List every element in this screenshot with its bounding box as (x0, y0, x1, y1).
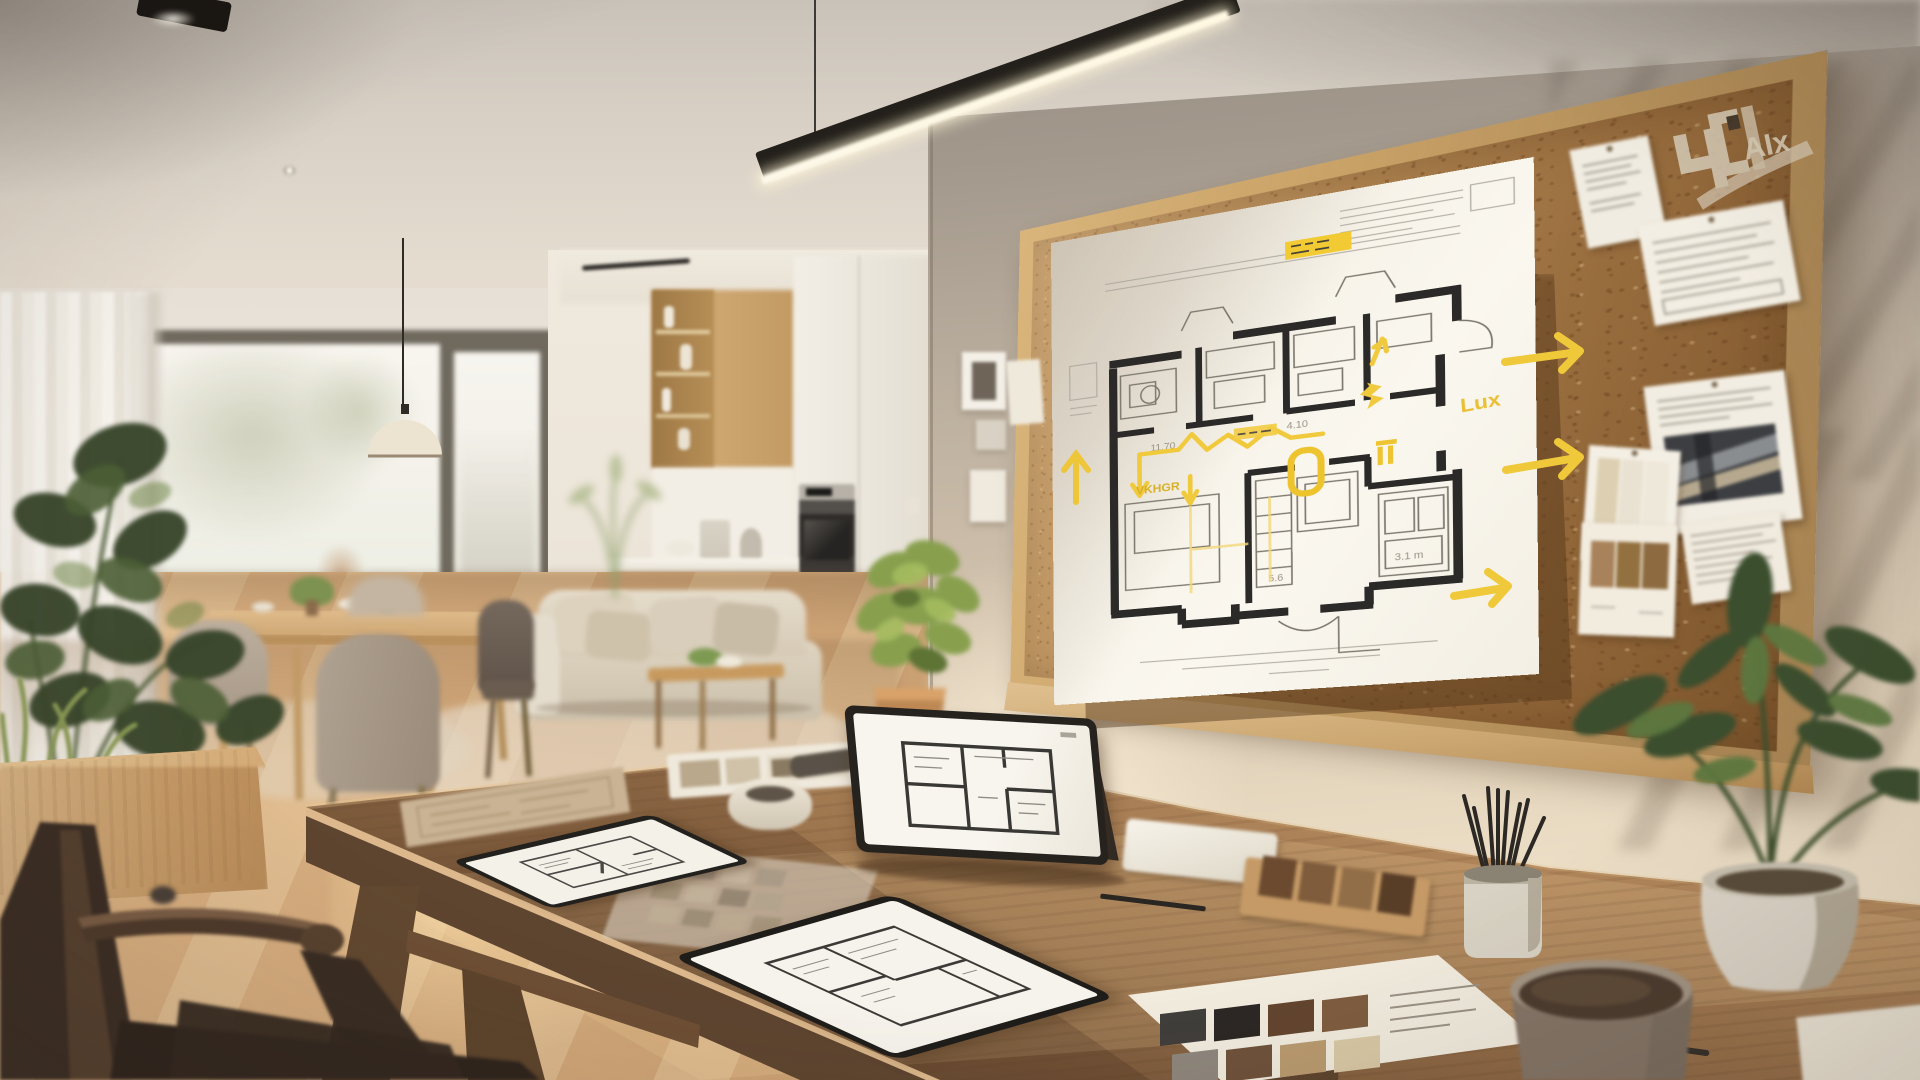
svg-text:VKHGR: VKHGR (1136, 481, 1180, 498)
svg-text:4.10: 4.10 (1287, 417, 1309, 431)
svg-text:3.1 m: 3.1 m (1395, 548, 1424, 563)
